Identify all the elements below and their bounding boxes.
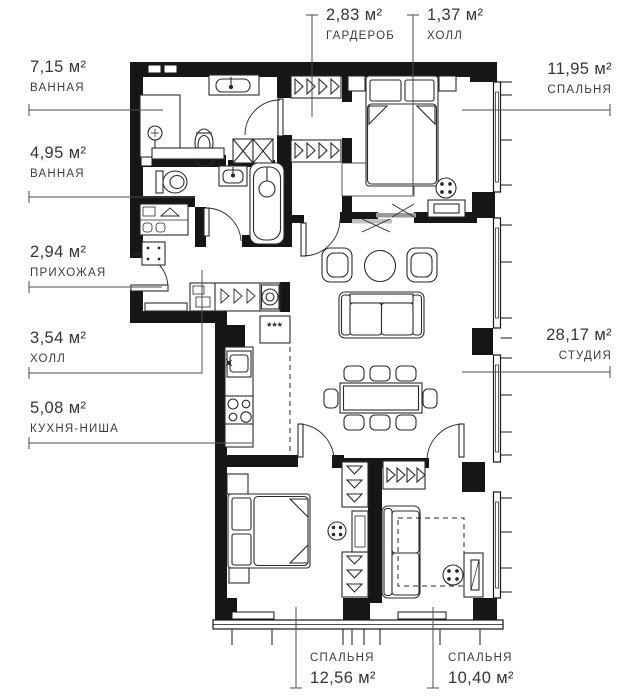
sink-2	[219, 166, 247, 186]
radiator	[398, 612, 446, 619]
entry-bench	[145, 303, 187, 311]
entry-door-leaf	[131, 285, 168, 291]
kitchen-sink	[226, 351, 251, 377]
room-area: 2,94 м²	[30, 243, 106, 263]
room-name: ВАННАЯ	[30, 82, 86, 96]
room-label-small-hall: 1,37 м² ХОЛЛ	[427, 6, 483, 44]
bedroom-top-furniture	[342, 76, 465, 217]
bathtub	[250, 163, 284, 244]
floor-plan-drawing	[0, 0, 633, 700]
entry-closet	[140, 204, 188, 235]
armchair	[322, 248, 352, 282]
nightstand	[348, 76, 365, 91]
room-label-bedroom-2: СПАЛЬНЯ 10,40 м²	[448, 652, 514, 689]
armchair	[407, 248, 437, 282]
room-label-hall: 3,54 м² ХОЛЛ	[30, 329, 86, 367]
room-name: СТУДИЯ	[546, 350, 612, 364]
room-label-bedroom-top: 11,95 м² СПАЛЬНЯ	[547, 60, 612, 98]
double-bed	[366, 76, 438, 186]
room-name: ВАННАЯ	[30, 168, 86, 182]
shoe-icon	[156, 223, 165, 232]
room-label-entry-hall: 2,94 м² ПРИХОЖАЯ	[30, 243, 106, 281]
room-label-bedroom-1: СПАЛЬНЯ 12,56 м²	[310, 652, 376, 689]
stove	[225, 396, 253, 424]
leader-lines	[29, 15, 610, 688]
hallway-closet	[190, 283, 280, 311]
room-area: 28,17 м²	[546, 326, 612, 346]
nightstand	[229, 568, 249, 583]
dining-set	[324, 366, 437, 430]
room-label-studio: 28,17 м² СТУДИЯ	[546, 326, 612, 364]
room-label-bathroom-2: 4,95 м² ВАННАЯ	[30, 144, 86, 182]
stool	[436, 178, 456, 198]
room-area: 5,08 м²	[30, 399, 119, 419]
desk	[428, 200, 465, 217]
room-label-wardrobe: 2,83 м² ГАРДЕРОБ	[326, 6, 395, 44]
shoe-icon	[143, 223, 152, 232]
room-name: ПРИХОЖАЯ	[30, 267, 106, 281]
room-area: 7,15 м²	[30, 58, 86, 78]
room-label-bathroom-1: 7,15 м² ВАННАЯ	[30, 58, 86, 96]
room-area: 1,37 м²	[427, 6, 483, 26]
room-name: ХОЛЛ	[427, 30, 483, 44]
dressing-table	[352, 511, 368, 552]
fridge-symbol: ***	[259, 321, 291, 333]
window-ticks-right	[501, 82, 513, 592]
room-name: СПАЛЬНЯ	[547, 84, 612, 98]
washing-machine-icon	[262, 285, 280, 309]
room-area: 4,95 м²	[30, 144, 86, 164]
room-area: 3,54 м²	[30, 329, 86, 349]
studio-furniture	[322, 248, 437, 430]
room-name: КУХНЯ-НИША	[30, 423, 119, 437]
room-area: 2,83 м²	[326, 6, 395, 26]
floor-plan: 7,15 м² ВАННАЯ 4,95 м² ВАННАЯ 2,94 м² ПР…	[0, 0, 633, 700]
sofa	[339, 292, 424, 338]
room-area: 10,40 м²	[448, 669, 514, 689]
bag-icon	[143, 207, 155, 216]
nightstand	[439, 76, 456, 91]
closet-hangers	[383, 461, 425, 489]
stool	[328, 522, 346, 540]
room-name: ХОЛЛ	[30, 353, 86, 367]
right-window-wall	[494, 82, 501, 598]
dresser	[227, 474, 248, 494]
washer-dryer-stack	[233, 139, 273, 163]
pouf	[142, 242, 165, 265]
room-area: 11,95 м²	[547, 60, 612, 80]
room-area: 12,56 м²	[310, 669, 376, 689]
room-name: СПАЛЬНЯ	[310, 652, 376, 666]
wardrobe-rails	[291, 76, 341, 162]
vanity-counter	[152, 148, 224, 159]
room-name: СПАЛЬНЯ	[448, 652, 514, 666]
room-label-kitchen-niche: 5,08 м² КУХНЯ-НИША	[30, 399, 119, 437]
sofa	[382, 506, 420, 598]
tv-unit	[464, 553, 483, 597]
toilet-2	[156, 171, 187, 193]
bedroom-1-furniture	[227, 462, 368, 597]
double-bed	[228, 494, 310, 568]
coffee-table	[365, 251, 396, 282]
sink-1	[209, 75, 259, 95]
round-table	[443, 565, 463, 585]
window-ticks-bottom	[232, 629, 480, 645]
bathroom-1-fixtures	[140, 75, 273, 166]
room-name: ГАРДЕРОБ	[326, 30, 395, 44]
